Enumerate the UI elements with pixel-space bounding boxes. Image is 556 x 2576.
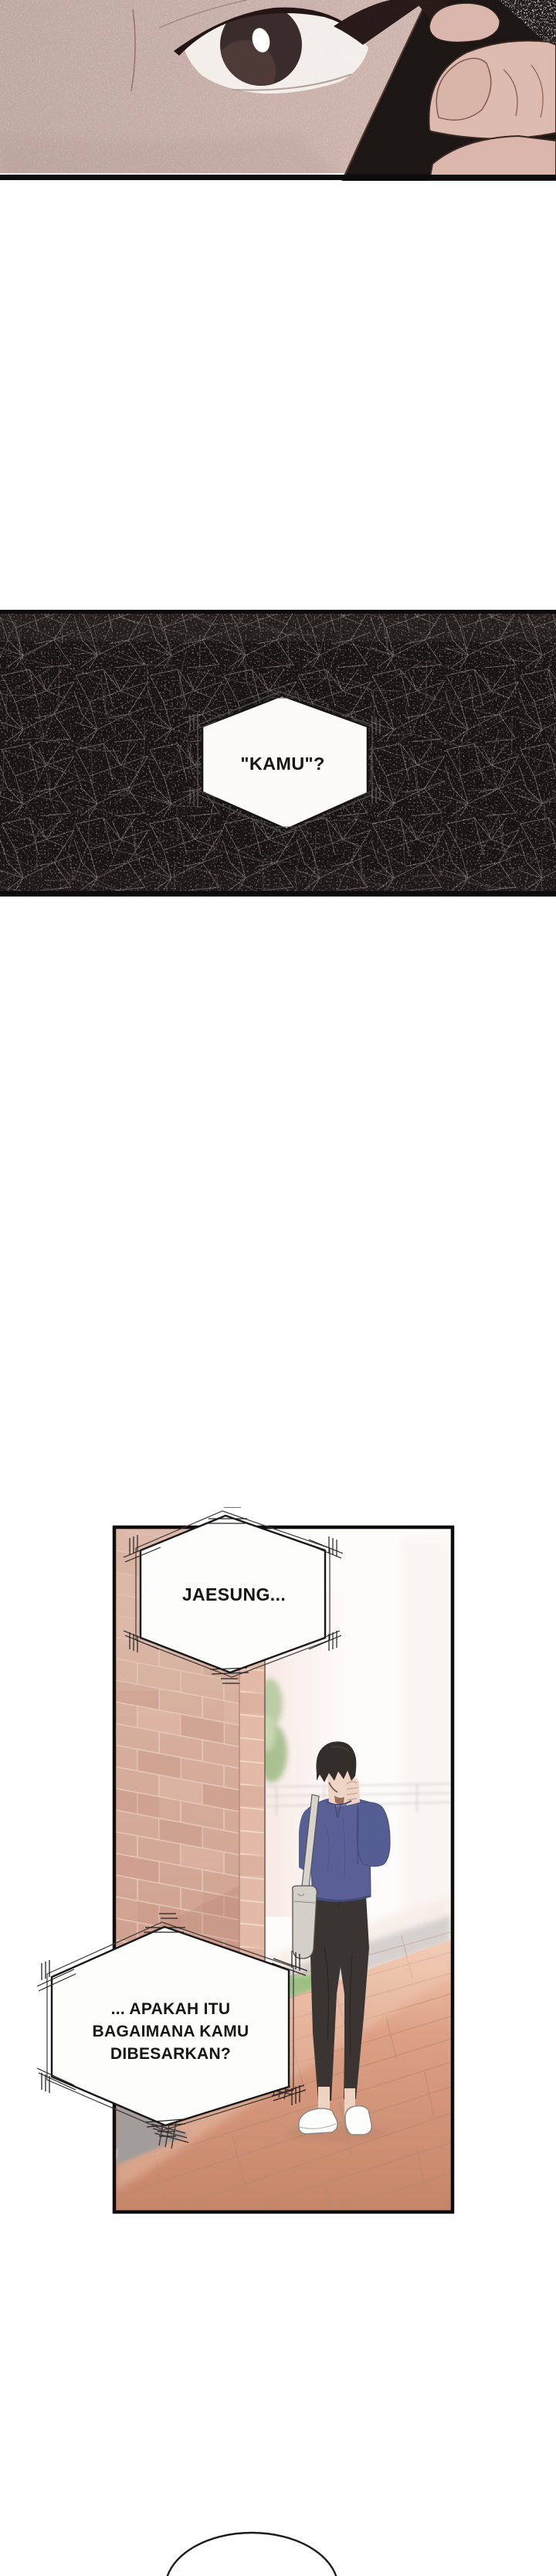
svg-text:JAESUNG...: JAESUNG... (182, 1584, 286, 1604)
svg-text:DIBESARKAN?: DIBESARKAN? (110, 2045, 231, 2063)
svg-text:"KAMU"?: "KAMU"? (240, 754, 324, 774)
svg-text:BAGAIMANA KAMU: BAGAIMANA KAMU (93, 2023, 249, 2040)
svg-text:... APAKAH ITU: ... APAKAH ITU (111, 2000, 231, 2018)
